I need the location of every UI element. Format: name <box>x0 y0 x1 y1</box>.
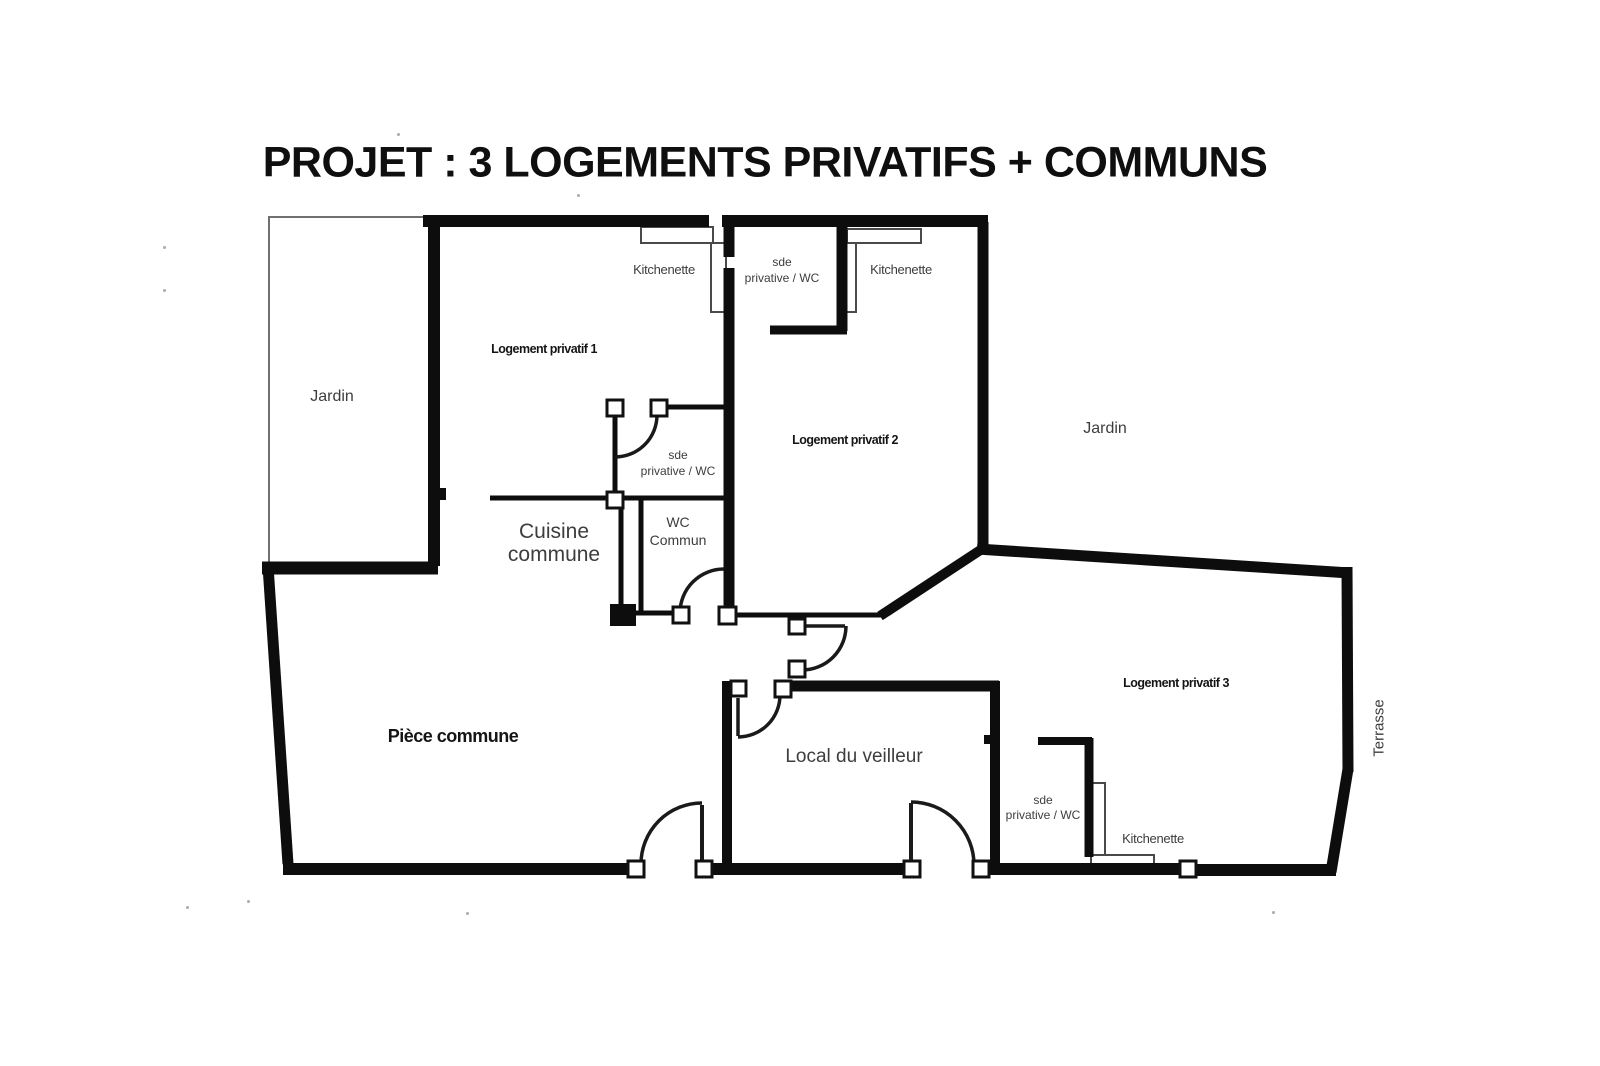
wall-logement2-diagonal <box>880 549 982 616</box>
counter-kitchenette-2-top <box>847 229 921 243</box>
floor-plan-page: PROJET : 3 LOGEMENTS PRIVATIFS + COMMUNS… <box>0 0 1600 1066</box>
room-label-kitchenette-3: Kitchenette <box>1122 831 1184 847</box>
wall-tick-sde3 <box>984 735 993 744</box>
jamb-cuisine-junction <box>607 492 623 508</box>
room-label-piece-commune: Pièce commune <box>388 725 519 748</box>
page-title: PROJET : 3 LOGEMENTS PRIVATIFS + COMMUNS <box>263 139 1268 188</box>
room-label-sde-1: sde privative / WC <box>745 254 820 286</box>
jamb-logement2-door-top <box>789 619 805 634</box>
room-label-terrasse: Terrasse <box>1371 699 1390 757</box>
room-label-jardin-right: Jardin <box>1083 419 1127 439</box>
scan-speck <box>247 900 250 903</box>
jamb-bottom-door2-right <box>973 861 989 877</box>
jamb-sde2-left <box>607 400 623 416</box>
room-label-logement-2: Logement privatif 2 <box>792 433 898 449</box>
scan-speck <box>1272 911 1275 914</box>
jamb-local-door-left <box>731 681 746 696</box>
room-label-kitchenette-2: Kitchenette <box>870 262 932 278</box>
walls <box>262 215 1350 874</box>
room-label-local-veilleur: Local du veilleur <box>785 745 922 769</box>
wall-stub-left <box>434 488 446 500</box>
jamb-terrasse <box>1180 861 1196 877</box>
scan-speck <box>163 246 166 249</box>
kitchenette-counters <box>641 227 1154 869</box>
wall-right-lower-slanted <box>1331 769 1348 872</box>
room-label-jardin-left: Jardin <box>310 387 354 407</box>
scan-speck <box>466 912 469 915</box>
scan-speck <box>163 289 166 292</box>
jamb-bottom-door1-right <box>696 861 712 877</box>
room-label-logement-1: Logement privatif 1 <box>491 342 597 358</box>
jamb-local-door-right <box>775 681 791 697</box>
room-label-wc-commun: WC Commun <box>650 513 707 549</box>
jamb-bottom-door2-left <box>904 861 920 877</box>
wall-logement3-top-sloped <box>977 549 1350 573</box>
wall-right <box>1347 567 1348 772</box>
jamb-logement2-door-bottom <box>789 661 805 677</box>
door-swings <box>615 415 974 865</box>
duct-block <box>610 604 636 626</box>
jamb-sde2-right <box>651 400 667 416</box>
counter-kitchenette-1-top <box>641 227 713 243</box>
jamb-bottom-door1-left <box>628 861 644 877</box>
jamb-corner-logement2 <box>719 607 736 624</box>
room-label-sde-2: sde privative / WC <box>641 447 716 479</box>
scan-speck <box>397 133 400 136</box>
room-label-cuisine-commune: Cuisine commune <box>508 520 600 566</box>
door-arc-logement2 <box>802 626 846 670</box>
room-label-logement-3: Logement privatif 3 <box>1123 676 1229 692</box>
room-label-kitchenette-1: Kitchenette <box>633 262 695 278</box>
jamb-wc-commun <box>673 607 689 623</box>
door-arc-logement3 <box>911 802 974 865</box>
room-label-sde-3: sde privative / WC <box>1006 793 1081 823</box>
door-arc-local <box>738 695 780 737</box>
scan-speck <box>577 194 580 197</box>
door-arc-piece-commune <box>641 803 702 864</box>
wall-left-lower-slanted <box>268 566 288 864</box>
scan-speck <box>186 906 189 909</box>
